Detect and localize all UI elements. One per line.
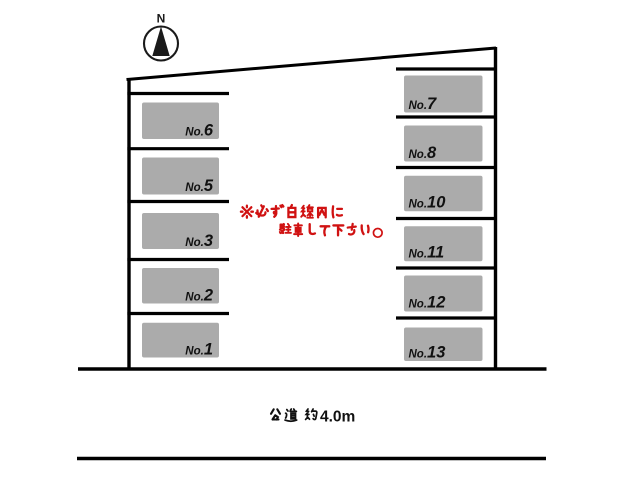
svg-text:4.0m: 4.0m: [320, 409, 355, 426]
svg-text:N: N: [157, 12, 166, 26]
